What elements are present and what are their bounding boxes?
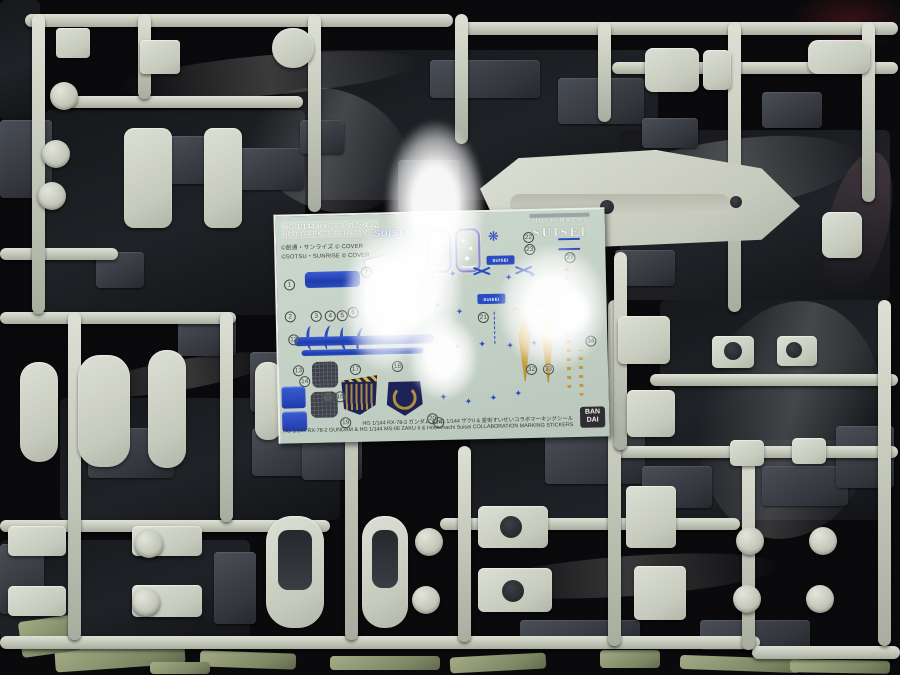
glare-highlight (330, 205, 440, 395)
kit-box-photo: HG 1/144 RX-78-2 ガンダム HG 1/144 RX-78-2 G… (0, 0, 900, 675)
glare-highlight (545, 282, 600, 342)
glare-layer (0, 0, 900, 675)
